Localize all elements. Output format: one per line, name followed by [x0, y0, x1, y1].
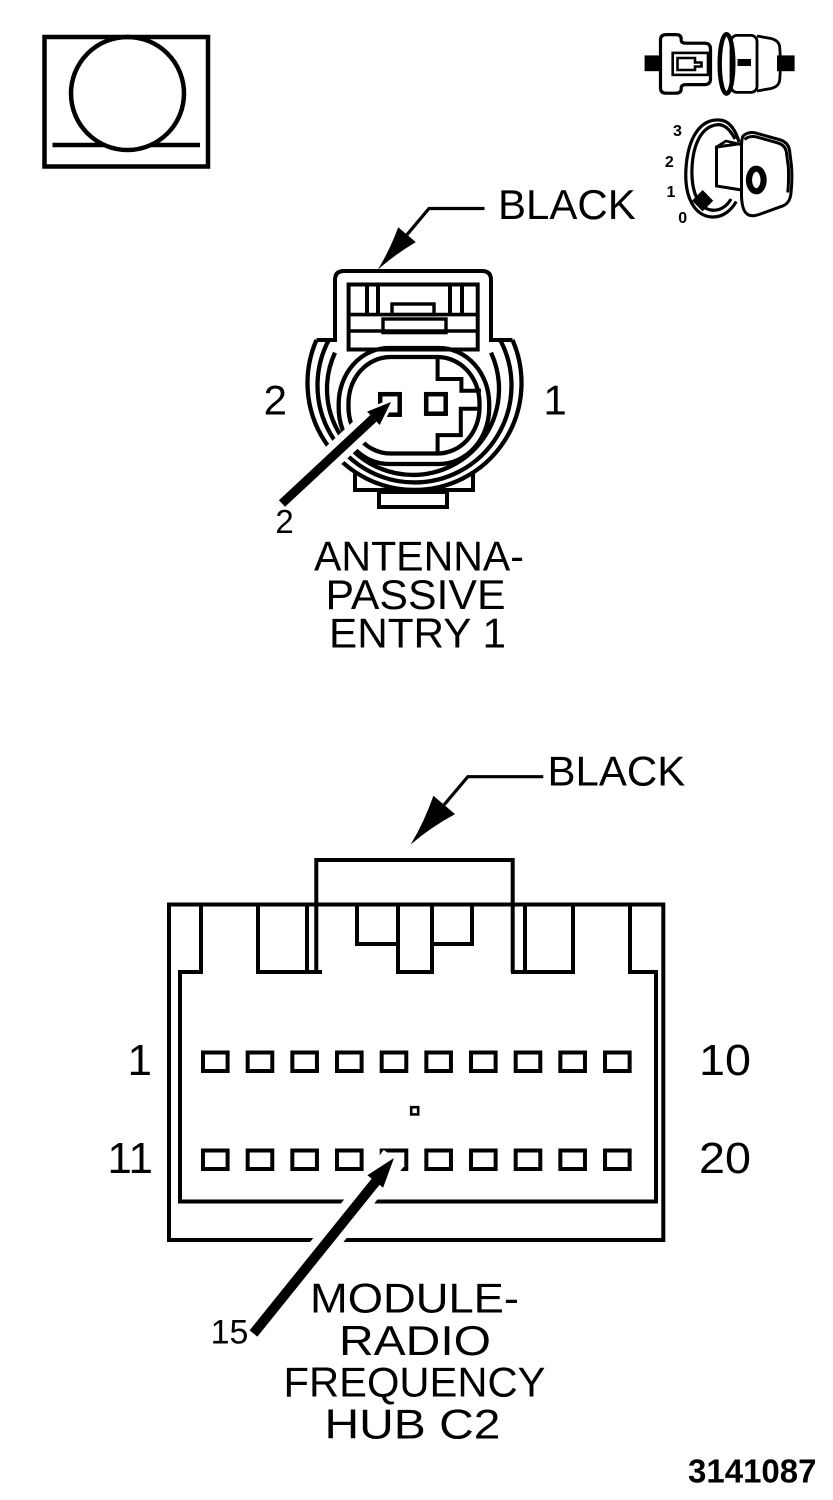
svg-text:MODULE-: MODULE-: [310, 1275, 519, 1322]
svg-text:HUB C2: HUB C2: [325, 1401, 501, 1448]
svg-text:FREQUENCY: FREQUENCY: [284, 1359, 546, 1406]
svg-text:3: 3: [673, 123, 682, 140]
svg-text:0: 0: [678, 210, 687, 227]
svg-text:2: 2: [264, 377, 287, 424]
svg-text:1: 1: [667, 184, 676, 201]
svg-text:1: 1: [543, 377, 566, 424]
svg-text:10: 10: [699, 1036, 751, 1085]
svg-text:15: 15: [211, 1314, 249, 1352]
svg-text:2: 2: [275, 503, 293, 540]
svg-text:20: 20: [699, 1134, 751, 1183]
svg-text:BLACK: BLACK: [548, 748, 686, 795]
svg-text:RADIO: RADIO: [339, 1317, 491, 1364]
svg-text:1: 1: [128, 1036, 152, 1085]
svg-text:2: 2: [665, 154, 674, 171]
svg-text:3141087: 3141087: [688, 1453, 816, 1490]
svg-text:BLACK: BLACK: [498, 181, 636, 228]
svg-text:11: 11: [107, 1134, 153, 1183]
svg-text:ENTRY 1: ENTRY 1: [329, 610, 506, 657]
